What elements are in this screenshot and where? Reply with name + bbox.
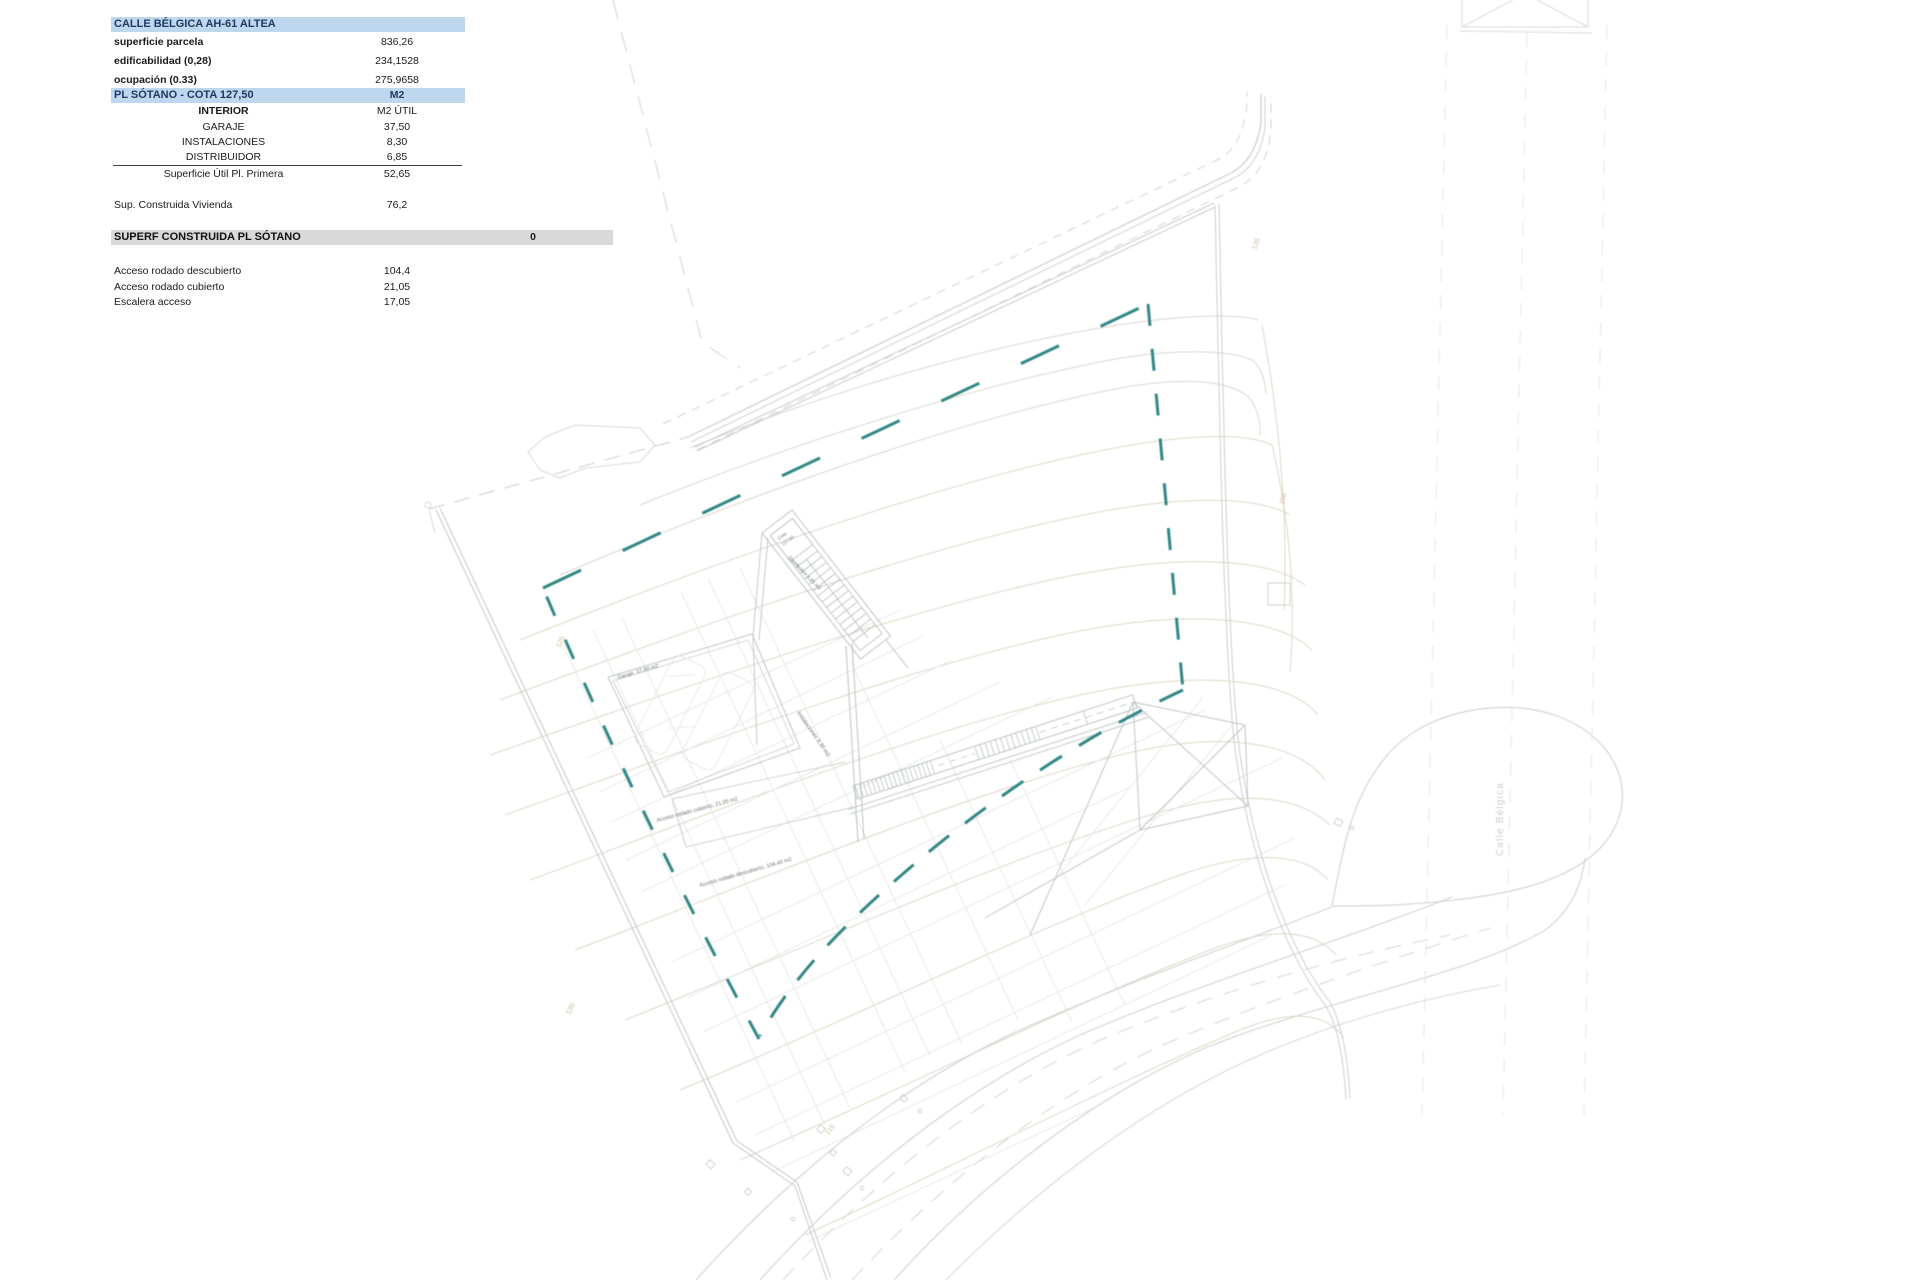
- svg-text:Instalaciones 8,30 m2: Instalaciones 8,30 m2: [795, 711, 831, 758]
- svg-text:Acceso rodado cubierto, 21,05: Acceso rodado cubierto, 21,05 m2: [656, 796, 738, 823]
- svg-text:120: 120: [565, 1002, 576, 1016]
- svg-text:150: 150: [1279, 492, 1288, 505]
- svg-text:Calle Bélgica: Calle Bélgica: [1495, 782, 1506, 856]
- svg-text:135: 135: [1251, 237, 1262, 250]
- svg-text:115: 115: [824, 1123, 837, 1136]
